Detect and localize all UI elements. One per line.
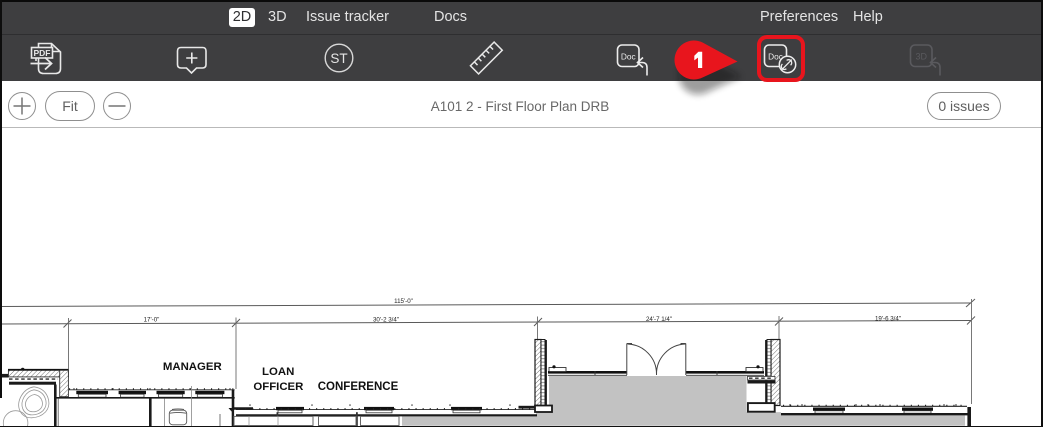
svg-text:MANAGER: MANAGER — [163, 361, 222, 373]
svg-text:17'-0": 17'-0" — [144, 317, 160, 324]
svg-text:Doc: Doc — [621, 51, 636, 61]
svg-text:OFFICER: OFFICER — [253, 381, 303, 393]
svg-text:19'-6 3/4": 19'-6 3/4" — [875, 315, 901, 322]
svg-text:115'-0": 115'-0" — [394, 298, 413, 305]
svg-text:LOAN: LOAN — [262, 366, 294, 378]
svg-text:30'-2 3/4": 30'-2 3/4" — [373, 317, 399, 324]
svg-text:PDF: PDF — [34, 48, 51, 58]
svg-text:CONFERENCE: CONFERENCE — [318, 381, 399, 393]
svg-text:24'-7 1/4": 24'-7 1/4" — [646, 316, 672, 323]
svg-text:3D: 3D — [916, 52, 928, 62]
svg-text:ST: ST — [330, 51, 347, 66]
